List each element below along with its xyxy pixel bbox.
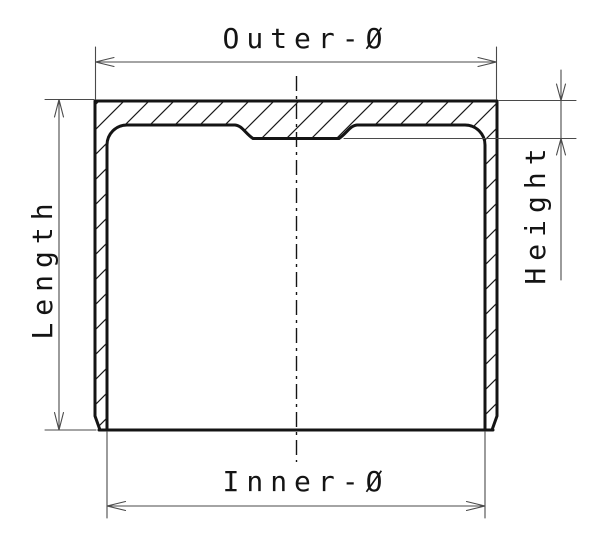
- inner-diameter-label: Inner-Ø: [222, 465, 389, 498]
- outer-diameter-label: Outer-Ø: [222, 22, 389, 55]
- length-label: Length: [26, 196, 59, 339]
- technical-drawing-canvas: Outer-Ø Length Height Inner-Ø: [0, 0, 600, 553]
- height-label: Height: [519, 141, 552, 284]
- drawing-page: Outer-Ø Length Height Inner-Ø: [0, 0, 600, 553]
- length-dimension: Length: [26, 100, 96, 431]
